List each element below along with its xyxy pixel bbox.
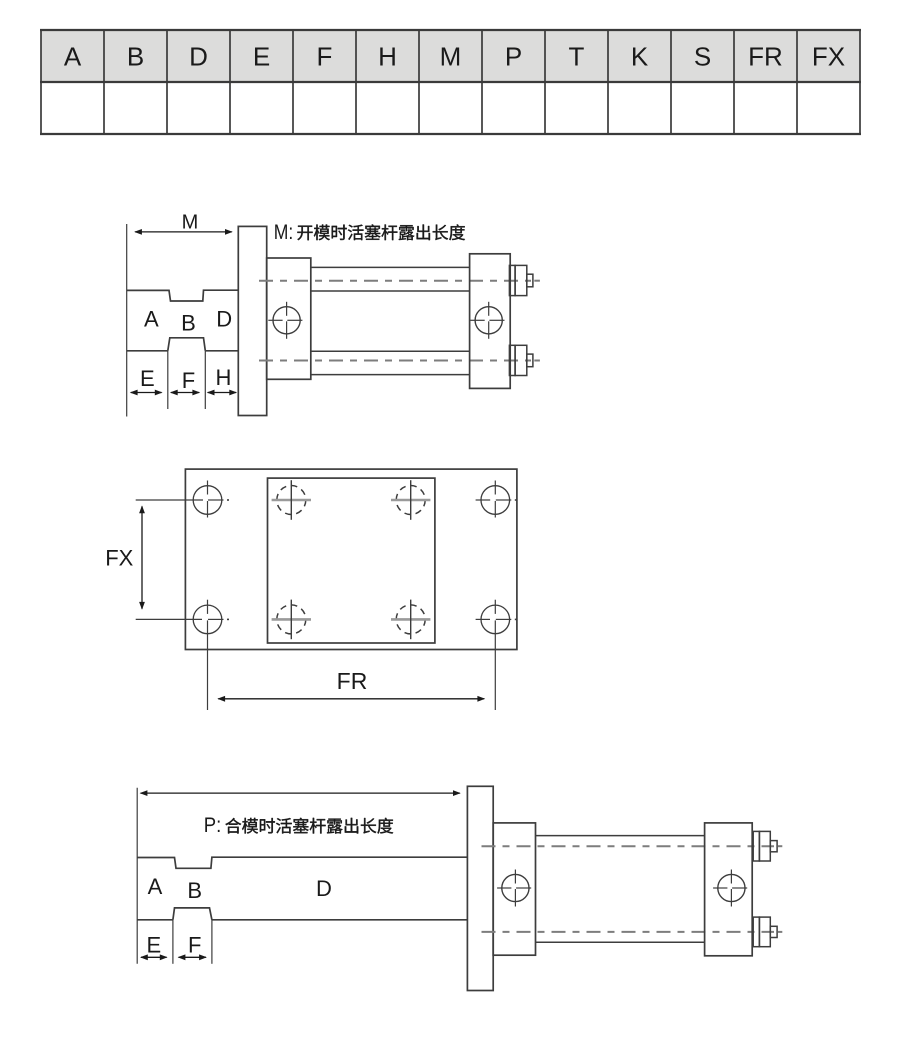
- svg-text:H: H: [378, 42, 397, 72]
- svg-text:B: B: [127, 42, 144, 72]
- svg-text:H: H: [215, 365, 231, 390]
- svg-text:T: T: [569, 42, 585, 72]
- svg-text:D: D: [316, 876, 332, 901]
- svg-text:P: P: [505, 42, 522, 72]
- svg-text:FX: FX: [812, 42, 845, 72]
- svg-text:A: A: [64, 42, 82, 72]
- svg-text:M: M: [182, 211, 199, 233]
- svg-text:E: E: [253, 42, 270, 72]
- svg-text:F: F: [182, 368, 195, 393]
- svg-text:D: D: [216, 307, 232, 332]
- svg-text:M:: M:: [274, 221, 294, 244]
- svg-text:FR: FR: [748, 42, 783, 72]
- svg-text:A: A: [148, 874, 163, 899]
- svg-text:B: B: [187, 878, 202, 903]
- svg-text:FR: FR: [337, 668, 368, 694]
- svg-text:M: M: [440, 42, 462, 72]
- svg-text:D: D: [189, 42, 208, 72]
- svg-text:E: E: [140, 366, 155, 391]
- svg-text:F: F: [188, 933, 201, 958]
- svg-text:P:: P:: [204, 814, 222, 837]
- svg-text:S: S: [694, 42, 711, 72]
- svg-text:FX: FX: [105, 545, 133, 570]
- svg-text:E: E: [146, 933, 161, 958]
- svg-text:F: F: [317, 42, 333, 72]
- svg-text:K: K: [631, 42, 649, 72]
- svg-text:A: A: [144, 307, 159, 332]
- svg-text:B: B: [181, 310, 196, 335]
